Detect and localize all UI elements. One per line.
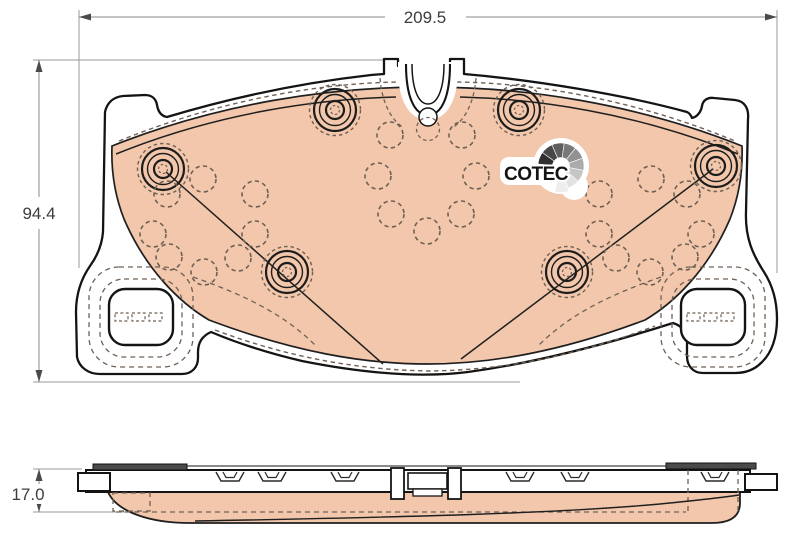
side-shim-left	[93, 464, 187, 470]
side-view	[78, 463, 777, 523]
dim-thickness-label: 17.0	[11, 485, 44, 504]
left-ear-hole	[109, 289, 173, 345]
brake-pad-diagram: COTEC	[0, 0, 800, 533]
logo-text: COTEC	[504, 164, 569, 185]
side-tab-right	[448, 468, 461, 499]
drawing-canvas: COTEC	[0, 0, 800, 533]
side-center-bracket	[408, 473, 447, 489]
dim-height-label: 94.4	[22, 204, 55, 223]
side-tab-left	[391, 468, 404, 499]
side-left-lug	[78, 473, 110, 491]
right-ear-hole	[681, 289, 745, 345]
side-shim-right	[666, 463, 756, 469]
dim-width-label: 209.5	[404, 8, 447, 27]
side-right-lug	[745, 474, 777, 490]
